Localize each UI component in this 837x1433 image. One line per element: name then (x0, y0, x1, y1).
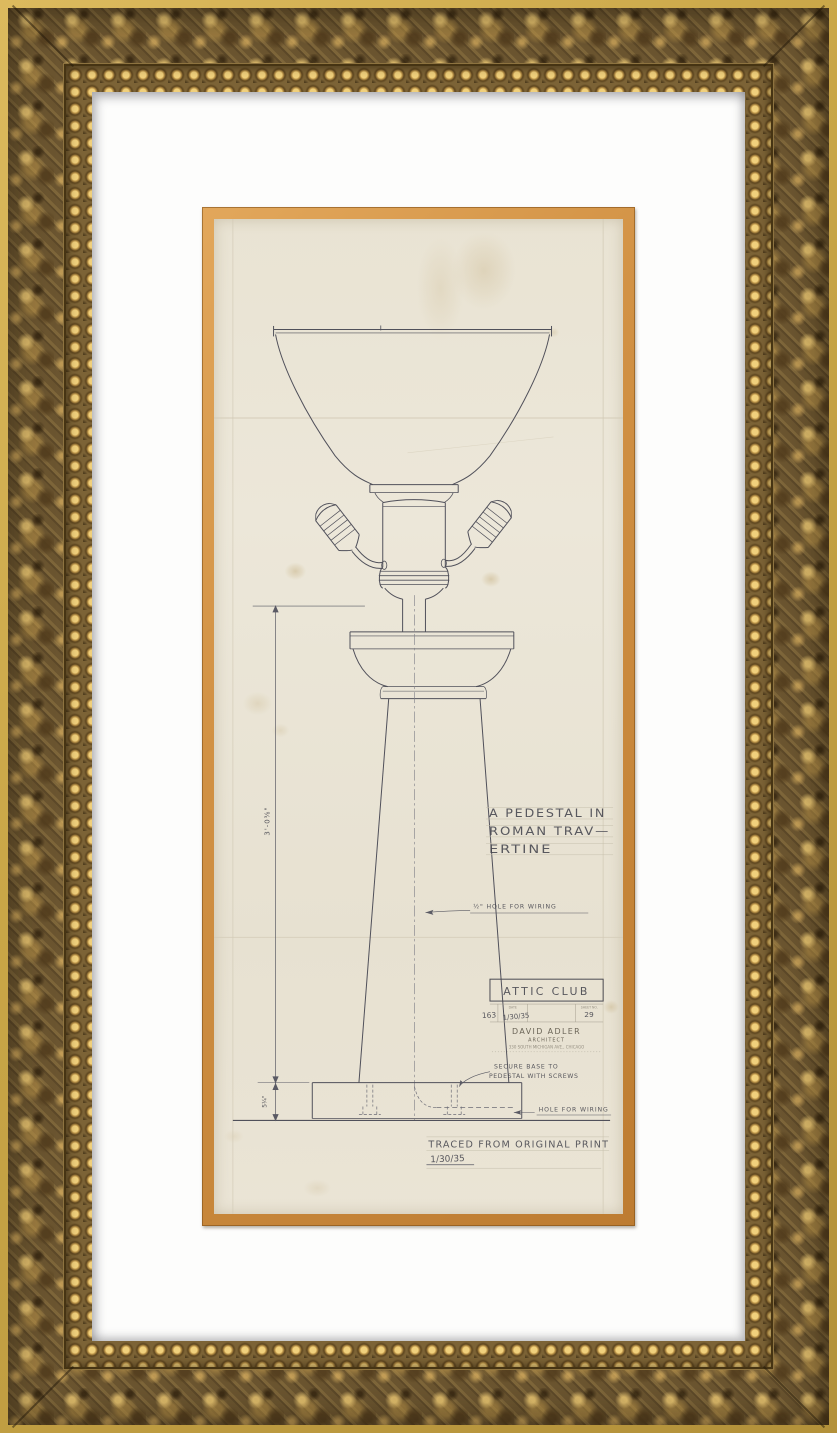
title-block-address: 330 SOUTH MICHIGAN AVE., CHICAGO (509, 1044, 585, 1049)
drawing-paper: 3'-0⅜" 5¼" ½" HOLE FOR WIRING A PEDESTAL… (214, 219, 623, 1214)
title-block-header-date: DATE (509, 1006, 517, 1010)
secure-note-leader (459, 1072, 490, 1087)
dimension-lines (253, 606, 365, 1120)
secure-note-line1: SECURE BASE TO (494, 1064, 559, 1071)
title-block: ATTIC CLUB DATE SHEET NO. 163 1/30/35 29… (482, 979, 603, 1052)
title-note-line1: A PEDESTAL IN (489, 806, 606, 820)
dim-base-height: 5¼" (262, 1095, 269, 1108)
traced-note: TRACED FROM ORIGINAL PRINT (427, 1139, 609, 1150)
title-block-header-sheet: SHEET NO. (581, 1006, 598, 1010)
title-block-architect: DAVID ADLER (512, 1027, 581, 1036)
wiring-note: ½" HOLE FOR WIRING (473, 903, 557, 911)
frame-miter-line (763, 1366, 825, 1428)
framed-artwork: 3'-0⅜" 5¼" ½" HOLE FOR WIRING A PEDESTAL… (0, 0, 837, 1433)
torch-bowl (274, 325, 552, 502)
base-wiring-note: HOLE FOR WIRING (539, 1107, 609, 1114)
title-block-architect-title: ARCHITECT (528, 1037, 565, 1043)
anchor-details (359, 1085, 514, 1115)
title-block-job-no: 163 (482, 1010, 497, 1020)
gold-fillet: 3'-0⅜" 5¼" ½" HOLE FOR WIRING A PEDESTAL… (202, 207, 635, 1226)
dim-shaft-height: 3'-0⅜" (264, 806, 272, 835)
frame-miter-line (12, 1366, 74, 1428)
secure-note-line2: PEDESTAL WITH SCREWS (489, 1073, 578, 1080)
socket-cluster (311, 496, 516, 632)
column-shaft (359, 699, 509, 1083)
title-block-sheet-no: 29 (584, 1010, 594, 1019)
title-note-line3: ERTINE (489, 842, 553, 856)
wiring-note-leader (425, 910, 588, 915)
frame-miter-line (12, 5, 74, 67)
mat-board: 3'-0⅜" 5¼" ½" HOLE FOR WIRING A PEDESTAL… (92, 92, 745, 1341)
frame-carved-band: 3'-0⅜" 5¼" ½" HOLE FOR WIRING A PEDESTAL… (8, 8, 829, 1425)
column-capital (350, 632, 514, 699)
traced-date: 1/30/35 (430, 1154, 465, 1165)
title-block-client: ATTIC CLUB (503, 985, 590, 998)
frame-miter-line (763, 5, 825, 67)
frame-outer-strip: 3'-0⅜" 5¼" ½" HOLE FOR WIRING A PEDESTAL… (0, 0, 837, 1433)
frame-bead-band: 3'-0⅜" 5¼" ½" HOLE FOR WIRING A PEDESTAL… (64, 64, 773, 1369)
paper-stains (224, 231, 619, 1197)
title-note-line2: ROMAN TRAV— (489, 824, 610, 838)
title-block-date: 1/30/35 (502, 1012, 529, 1022)
pedestal-drawing: 3'-0⅜" 5¼" ½" HOLE FOR WIRING A PEDESTAL… (214, 219, 623, 1214)
